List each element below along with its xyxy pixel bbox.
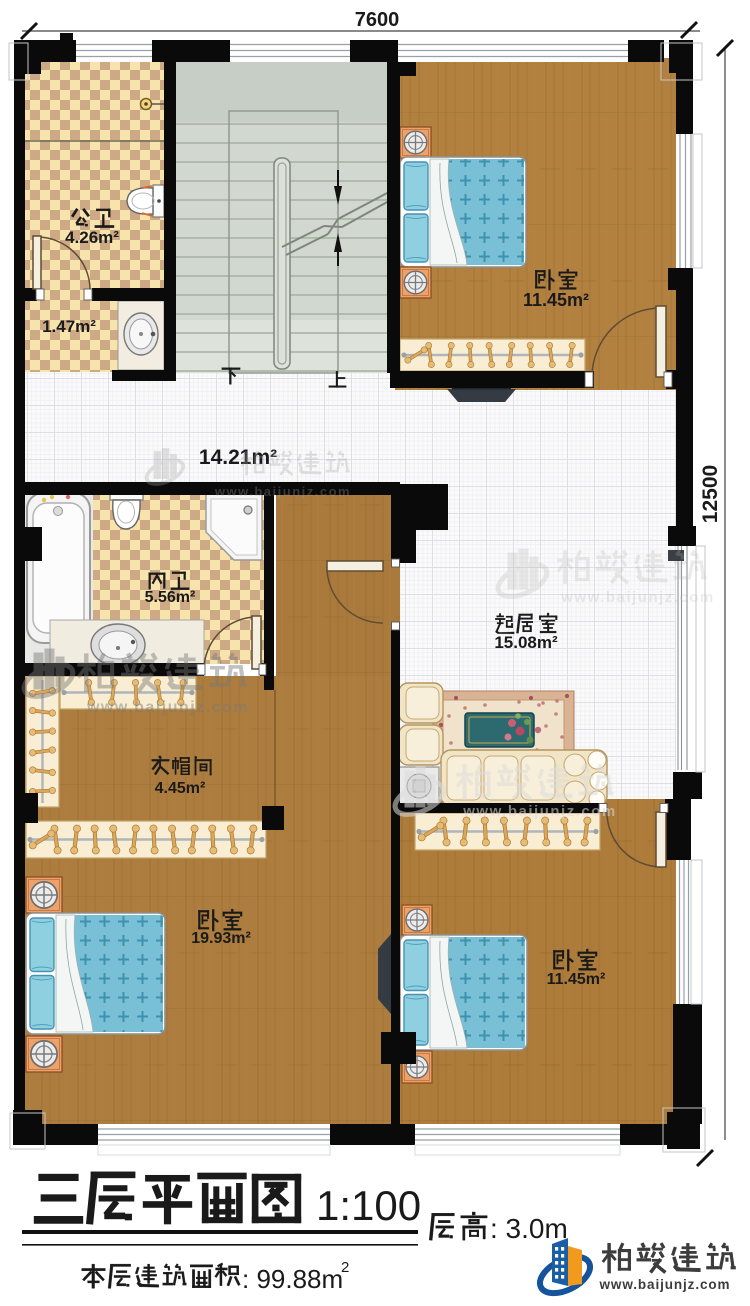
svg-text:www.baijunjz.com: www.baijunjz.com [86, 699, 249, 716]
svg-text:15.08m²: 15.08m² [494, 633, 558, 652]
svg-text:12500: 12500 [699, 465, 722, 523]
svg-text:www.baijunjz.com: www.baijunjz.com [560, 589, 714, 606]
svg-text:: 3.0m: : 3.0m [490, 1213, 568, 1244]
svg-text:1:100: 1:100 [316, 1182, 421, 1229]
svg-text:www.baijunjz.com: www.baijunjz.com [462, 803, 616, 820]
svg-text:11.45m²: 11.45m² [547, 971, 606, 988]
svg-text:www.baijunjz.com: www.baijunjz.com [214, 484, 351, 499]
svg-text:4.26m²: 4.26m² [65, 228, 119, 247]
svg-text:14.21m²: 14.21m² [199, 446, 277, 469]
svg-text:www.baijunjz.com: www.baijunjz.com [599, 1277, 731, 1292]
svg-text:11.45m²: 11.45m² [523, 290, 589, 310]
svg-text:2: 2 [341, 1259, 349, 1276]
svg-text:1.47m²: 1.47m² [42, 317, 96, 336]
svg-text:4.45m²: 4.45m² [155, 780, 206, 797]
svg-text:7600: 7600 [355, 9, 400, 31]
svg-text:19.93m²: 19.93m² [191, 930, 251, 947]
svg-text:5.56m²: 5.56m² [145, 589, 196, 606]
svg-text:: 99.88m: : 99.88m [242, 1264, 343, 1294]
